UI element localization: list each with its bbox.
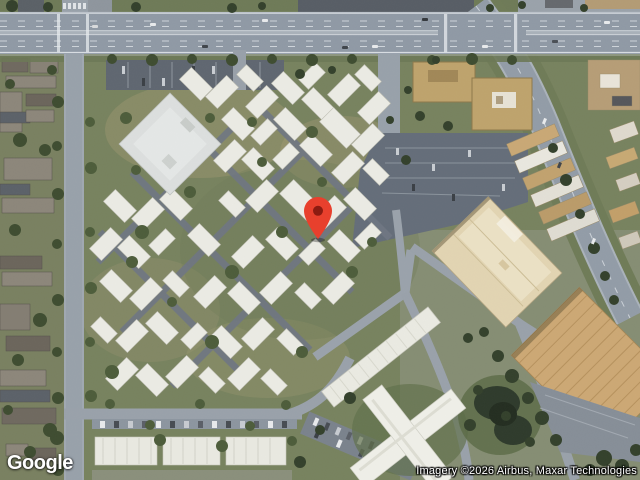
imagery-attribution: Imagery ©2026 Airbus, Maxar Technologies bbox=[416, 465, 637, 477]
pin-dot bbox=[313, 206, 323, 216]
satellite-map[interactable]: Google Imagery ©2026 Airbus, Maxar Techn… bbox=[0, 0, 640, 480]
location-pin-icon[interactable] bbox=[304, 197, 332, 243]
google-logo[interactable]: Google bbox=[7, 452, 73, 475]
pin-body bbox=[304, 197, 332, 239]
